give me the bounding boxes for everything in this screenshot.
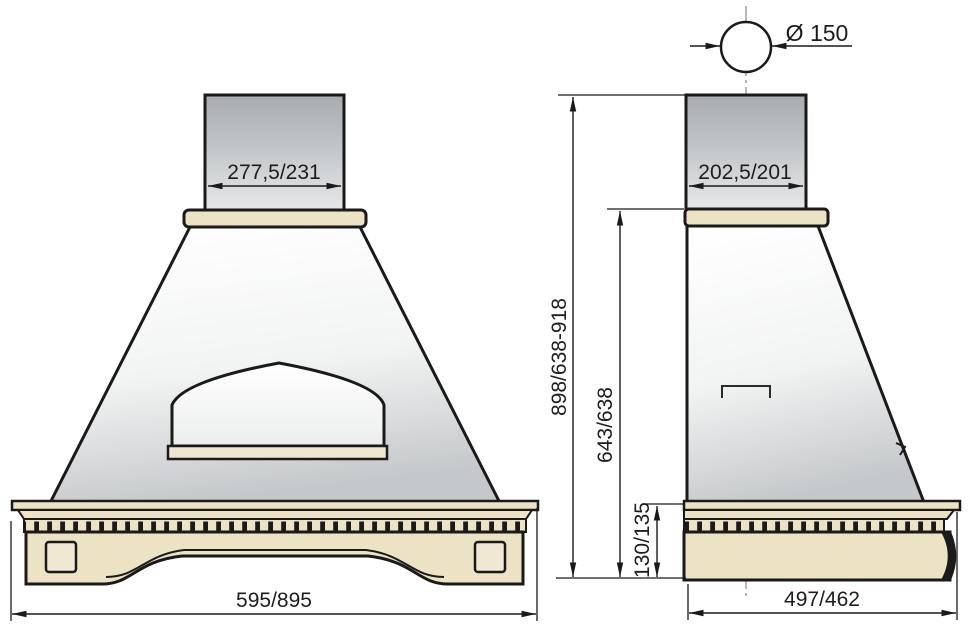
dim-label-side-overall-height: 898/638-918 (548, 298, 571, 416)
dim-side-chimney-depth: 202,5/201 (689, 161, 803, 186)
side-frieze-panel (684, 532, 950, 580)
duct-outlet-circle (721, 22, 771, 72)
side-view: Ø 150 202,5/201 898/638-918 (548, 6, 960, 620)
dim-label-front-overall-width: 595/895 (236, 589, 312, 612)
front-cornice-cove (18, 510, 532, 519)
side-cornice-top-board (684, 501, 960, 510)
side-canopy-body (687, 226, 925, 505)
side-chimney (686, 95, 806, 212)
front-mantel-shelf (184, 210, 366, 227)
front-frieze-panel (26, 532, 523, 584)
front-rosette-left (46, 542, 76, 572)
side-cornice-cove (684, 510, 954, 519)
dim-label-side-chimney-depth: 202,5/201 (698, 161, 791, 184)
side-mantel-shelf (685, 209, 828, 226)
dim-label-duct-diameter: Ø 150 (786, 20, 849, 46)
hood-technical-drawing: 277,5/231 595/895 (0, 0, 970, 631)
front-arch-shelf-strip (168, 446, 387, 459)
dim-label-side-mid-height: 643/638 (594, 387, 617, 463)
drawing-canvas: 277,5/231 595/895 (0, 0, 970, 631)
front-cornice-top-board (12, 501, 538, 510)
front-view: 277,5/231 595/895 (11, 95, 538, 621)
front-chimney (205, 95, 344, 213)
front-dentil-molding (24, 519, 526, 532)
side-dentil-molding (684, 519, 944, 532)
front-rosette-right (475, 542, 505, 572)
dim-label-front-chimney-width: 277,5/231 (227, 161, 320, 184)
dim-label-side-overall-depth: 497/462 (784, 588, 860, 611)
dim-label-side-base-height: 130/135 (631, 502, 654, 578)
dim-side-overall-height: 898/638-918 (548, 95, 686, 578)
dim-side-base-height: 130/135 (631, 502, 684, 578)
